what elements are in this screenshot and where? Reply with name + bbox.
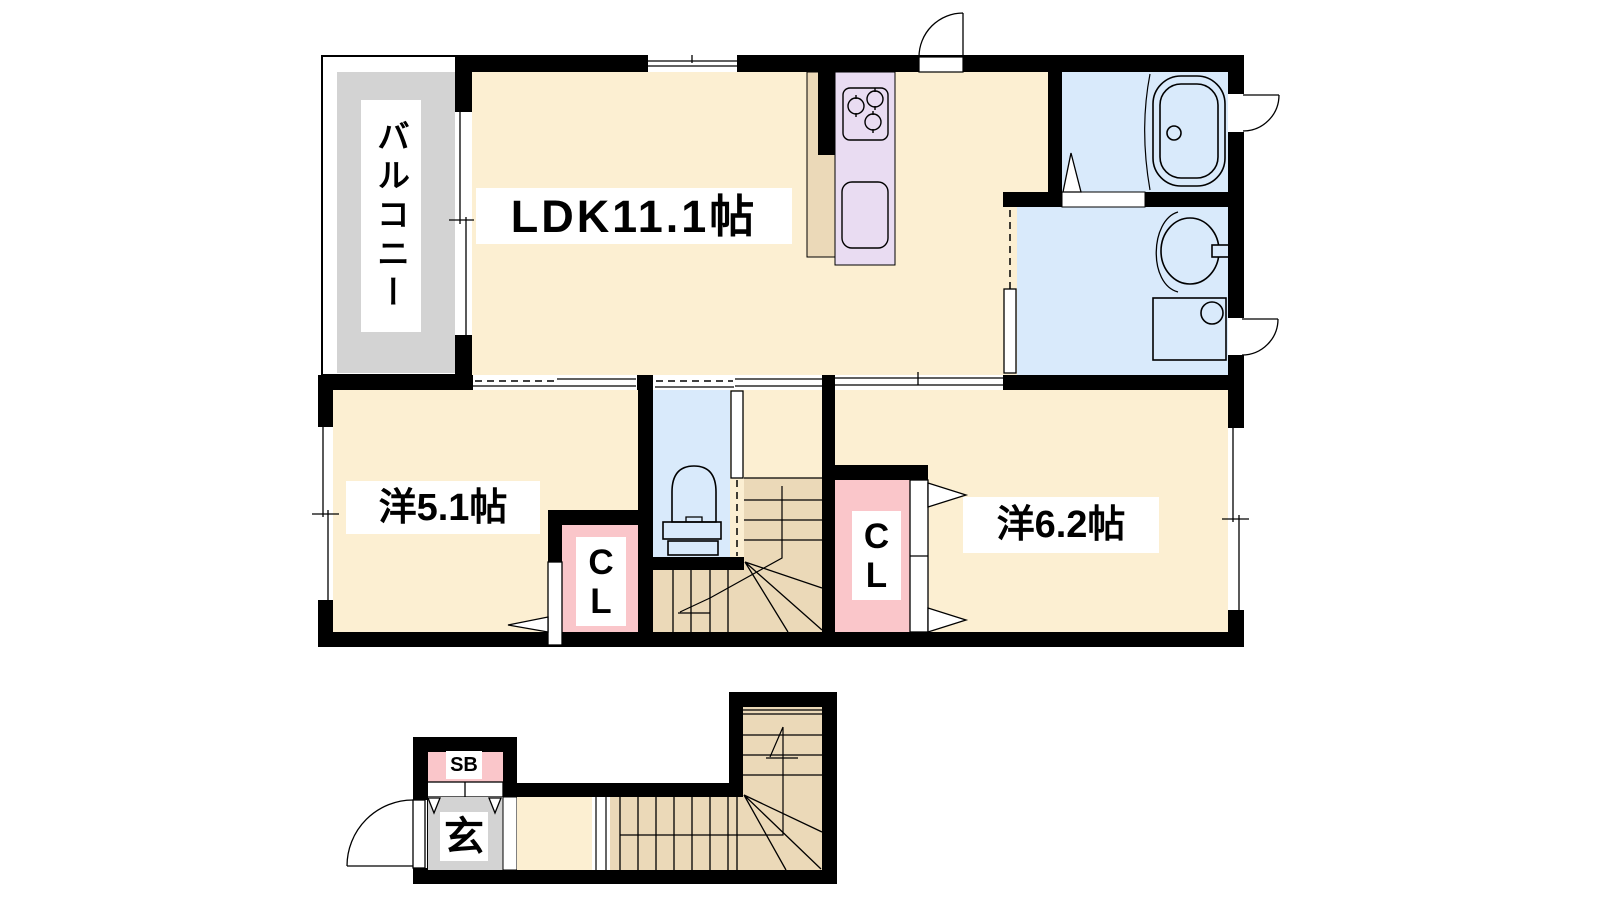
window-top <box>648 55 737 72</box>
hallway-floor <box>517 797 592 870</box>
shoe-box-label: SB <box>446 751 482 779</box>
ldk-label: LDK11.1帖 <box>476 188 792 244</box>
kitchen-area <box>807 72 895 265</box>
stairwell-opening <box>735 375 822 390</box>
closet-5-1-label: CL <box>576 537 626 626</box>
washroom <box>1017 207 1232 375</box>
entrance-label: 玄 <box>440 812 488 861</box>
toilet-room <box>653 390 730 557</box>
swing-door-top <box>919 13 963 72</box>
floor-plan-drawing <box>0 0 1600 900</box>
threshold <box>592 797 610 870</box>
floor-plan-page: バルコニー LDK11.1帖 洋5.1帖 洋6.2帖 CL CL SB 玄 <box>0 0 1600 900</box>
entry-door <box>347 800 427 868</box>
bathroom <box>1062 72 1228 192</box>
western-room-6-2-label: 洋6.2帖 <box>963 497 1159 553</box>
sliding-door-ldk-51 <box>473 375 637 390</box>
balcony-label: バルコニー <box>361 100 421 332</box>
sliding-door-toilet <box>653 375 735 390</box>
closet-6-2-label: CL <box>852 511 901 600</box>
window-bath <box>1228 94 1279 132</box>
window-washroom <box>1228 318 1278 355</box>
western-room-5-1-label: 洋5.1帖 <box>346 481 540 534</box>
